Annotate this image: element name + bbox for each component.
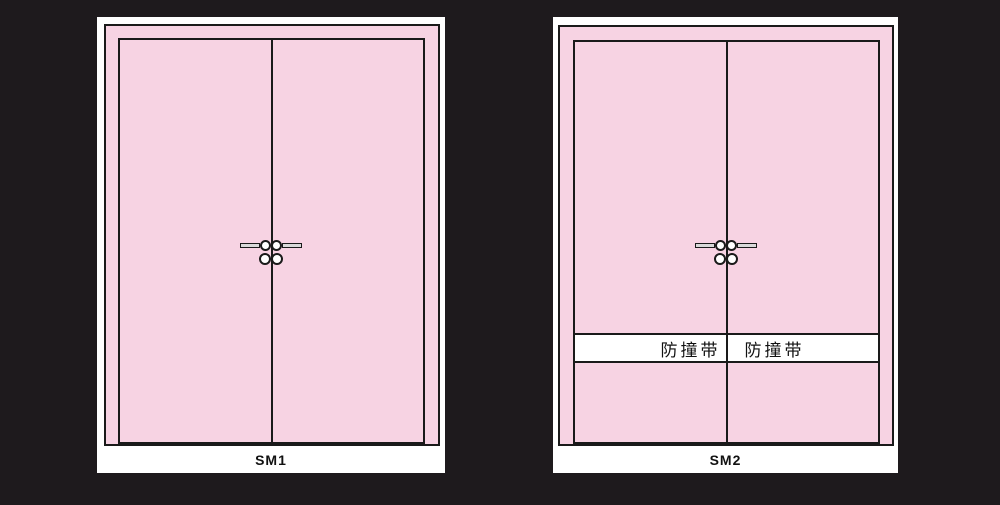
panel-label: SM2 <box>553 446 898 473</box>
canvas-background: { "colors": { "background": "#1e1a1d", "… <box>0 0 1000 505</box>
lock-cylinder-icon <box>714 253 726 265</box>
door-knob-icon <box>726 240 737 251</box>
door-knob-icon <box>260 240 271 251</box>
lock-cylinder-icon <box>271 253 283 265</box>
door-handle-icon <box>694 236 758 266</box>
handle-lever-icon <box>737 243 757 248</box>
handle-lever-icon <box>240 243 260 248</box>
door-knob-icon <box>271 240 282 251</box>
bump-strip-label: 防撞带 <box>745 336 805 361</box>
door-handle-icon <box>239 236 303 266</box>
door-knob-icon <box>715 240 726 251</box>
door-elevation-sm2: 防撞带 防撞带 SM2 <box>553 17 898 473</box>
lock-cylinder-icon <box>726 253 738 265</box>
lock-cylinder-icon <box>259 253 271 265</box>
bump-strip-label: 防撞带 <box>661 336 721 361</box>
handle-lever-icon <box>695 243 715 248</box>
panel-label: SM1 <box>97 446 445 473</box>
bump-strip: 防撞带 <box>575 333 726 363</box>
door-elevation-sm1: SM1 <box>97 17 445 473</box>
handle-lever-icon <box>282 243 302 248</box>
door-frame <box>104 24 440 446</box>
bump-strip: 防撞带 <box>728 333 879 363</box>
